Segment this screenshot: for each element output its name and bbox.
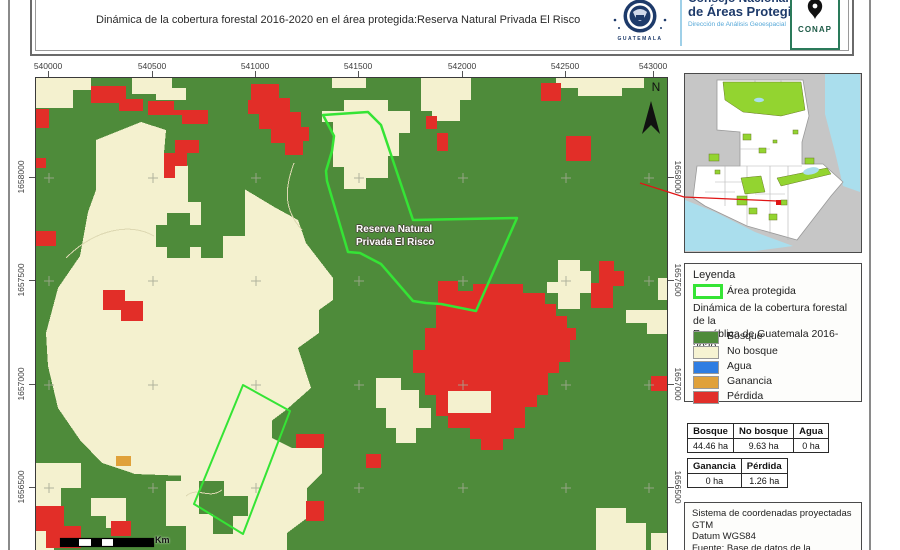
reserve-name-line1: Reserva Natural: [356, 223, 434, 236]
legend-label-no-bosque: No bosque: [727, 345, 778, 357]
forest-raster: [36, 78, 668, 550]
table-row: 44.46 ha 9.63 ha 0 ha: [688, 439, 829, 453]
y-tick-right: [668, 384, 674, 385]
legend-subtitle-line1: Dinámica de la cobertura forestal de la: [693, 302, 858, 328]
conap-label: CONAP: [792, 25, 838, 34]
stats-table-cover: Bosque No bosque Agua 44.46 ha 9.63 ha 0…: [687, 423, 829, 453]
seal-graphic: [607, 0, 673, 50]
conap-bird-icon: [805, 0, 825, 20]
inset-map: [684, 73, 862, 253]
area-protegida-label: Área protegida: [727, 285, 796, 297]
legend-title: Leyenda: [693, 269, 735, 281]
stats-header-no-bosque: No bosque: [734, 424, 794, 439]
legend-swatch-agua: [693, 361, 719, 374]
stats-value-bosque: 44.46 ha: [688, 439, 734, 453]
y-axis-label-right: 1658000: [673, 160, 683, 193]
map-layout-page: Dinámica de la cobertura forestal 2016-2…: [0, 0, 900, 550]
legend-swatch-bosque: [693, 331, 719, 344]
reserve-name-line2: Privada El Risco: [356, 236, 434, 249]
table-row: Bosque No bosque Agua: [688, 424, 829, 439]
x-axis-label: 540500: [138, 61, 166, 71]
conap-logo: CONAP: [790, 0, 840, 50]
north-label: N: [644, 80, 668, 94]
legend-swatch-ganancia: [693, 376, 719, 389]
stats-value-agua: 0 ha: [794, 439, 829, 453]
legend-label-agua: Agua: [727, 360, 752, 372]
scale-bar: [61, 539, 154, 547]
table-row: 0 ha 1.26 ha: [688, 474, 788, 488]
legend-swatch-perdida: [693, 391, 719, 404]
y-axis-label: 1657500: [16, 263, 26, 296]
info-line: GTM: [692, 520, 854, 532]
legend-swatch-no-bosque: [693, 346, 719, 359]
stats-header-perdida: Pérdida: [741, 459, 787, 474]
header: Dinámica de la cobertura forestal 2016-2…: [30, 0, 854, 56]
page-border-right: [869, 0, 871, 550]
stats-value-perdida: 1.26 ha: [741, 474, 787, 488]
stats-header-agua: Agua: [794, 424, 829, 439]
y-tick-right: [668, 280, 674, 281]
stats-value-no-bosque: 9.63 ha: [734, 439, 794, 453]
seal-country-label: GUATEMALA: [607, 36, 673, 42]
x-axis-label: 542000: [448, 61, 476, 71]
map-title: Dinámica de la cobertura forestal 2016-2…: [96, 14, 580, 26]
stats-table-change: Ganancia Pérdida 0 ha 1.26 ha: [687, 458, 788, 488]
info-line: Datum WGS84: [692, 531, 854, 543]
legend-label-ganancia: Ganancia: [727, 375, 772, 387]
y-axis-label-right: 1657000: [673, 367, 683, 400]
x-axis-label: 543000: [639, 61, 667, 71]
x-axis-label: 541500: [344, 61, 372, 71]
main-map: [35, 77, 668, 550]
guatemala-seal-logo: GUATEMALA: [607, 0, 673, 50]
location-marker: [776, 200, 781, 205]
info-line: Fuente: Base de datos de la: [692, 543, 854, 550]
x-axis-label: 542500: [551, 61, 579, 71]
y-axis-label-right: 1657500: [673, 263, 683, 296]
y-axis-label: 1656500: [16, 470, 26, 503]
x-axis-label: 541000: [241, 61, 269, 71]
reserve-name-label: Reserva Natural Privada El Risco: [356, 223, 434, 249]
legend-label-perdida: Pérdida: [727, 390, 763, 402]
y-tick-right: [668, 487, 674, 488]
table-row: Ganancia Pérdida: [688, 459, 788, 474]
stats-value-ganancia: 0 ha: [688, 474, 742, 488]
x-axis-label: 540000: [34, 61, 62, 71]
page-border-left: [8, 0, 10, 550]
y-axis-label-right: 1656500: [673, 470, 683, 503]
legend-label-bosque: Bosque: [727, 330, 763, 342]
header-divider: [680, 0, 682, 46]
guatemala-inset-graphic: [685, 74, 860, 251]
legend-panel: Leyenda Área protegida Dinámica de la co…: [684, 263, 862, 402]
stats-header-bosque: Bosque: [688, 424, 734, 439]
scale-unit-label: Km: [155, 535, 170, 545]
y-tick-right: [668, 177, 674, 178]
info-line: Sistema de coordenadas proyectadas: [692, 508, 854, 520]
area-protegida-swatch: [693, 284, 723, 299]
coordinate-info-panel: Sistema de coordenadas proyectadas GTM D…: [684, 502, 862, 550]
y-axis-label: 1658000: [16, 160, 26, 193]
stats-header-ganancia: Ganancia: [688, 459, 742, 474]
y-axis-label: 1657000: [16, 367, 26, 400]
